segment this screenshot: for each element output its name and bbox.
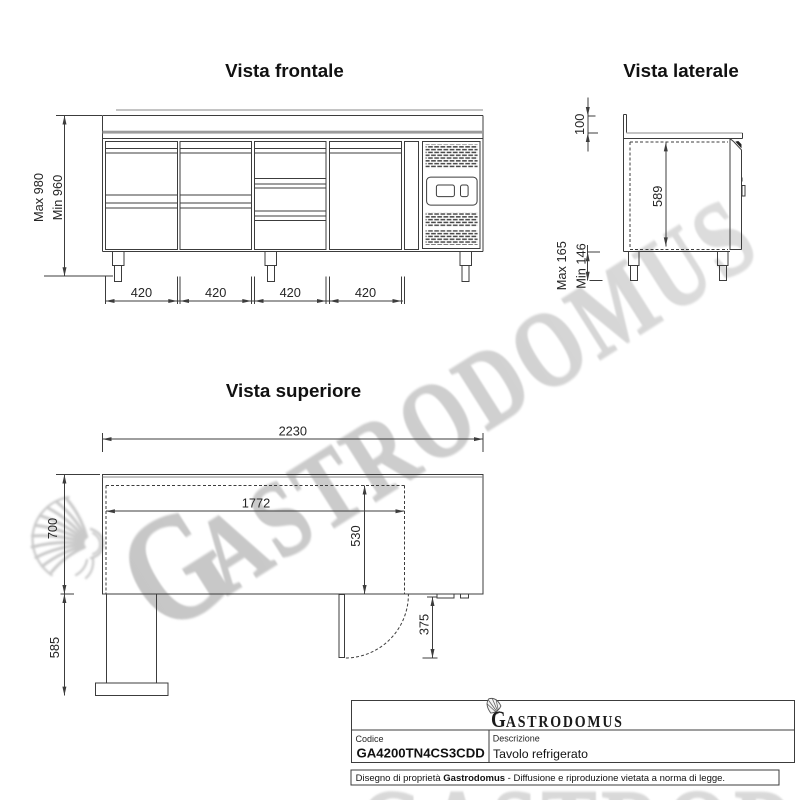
svg-text:Max 980: Max 980 xyxy=(31,173,46,222)
svg-text:Vista laterale: Vista laterale xyxy=(623,60,739,81)
svg-text:Max 165: Max 165 xyxy=(554,241,569,290)
svg-text:420: 420 xyxy=(280,285,301,300)
svg-text:100: 100 xyxy=(572,114,587,135)
svg-text:420: 420 xyxy=(355,285,376,300)
svg-text:420: 420 xyxy=(205,285,226,300)
svg-text:Vista superiore: Vista superiore xyxy=(226,380,361,401)
svg-text:GA4200TN4CS3CDD: GA4200TN4CS3CDD xyxy=(357,746,485,761)
svg-text:Min 960: Min 960 xyxy=(50,175,65,221)
svg-text:Min 146: Min 146 xyxy=(574,243,589,289)
svg-text:Vista frontale: Vista frontale xyxy=(225,60,344,81)
svg-text:1772: 1772 xyxy=(242,496,270,511)
svg-text:375: 375 xyxy=(417,614,432,635)
svg-text:589: 589 xyxy=(650,186,665,207)
svg-text:700: 700 xyxy=(45,518,60,539)
svg-text:Descrizione: Descrizione xyxy=(493,733,540,743)
svg-text:2230: 2230 xyxy=(279,424,307,439)
svg-text:Disegno di proprietà Gastrodom: Disegno di proprietà Gastrodomus - Diffu… xyxy=(356,773,725,784)
svg-text:530: 530 xyxy=(348,525,363,546)
svg-text:Tavolo refrigerato: Tavolo refrigerato xyxy=(493,747,588,761)
svg-text:585: 585 xyxy=(47,637,62,658)
svg-text:Codice: Codice xyxy=(356,734,384,744)
svg-text:420: 420 xyxy=(131,285,152,300)
